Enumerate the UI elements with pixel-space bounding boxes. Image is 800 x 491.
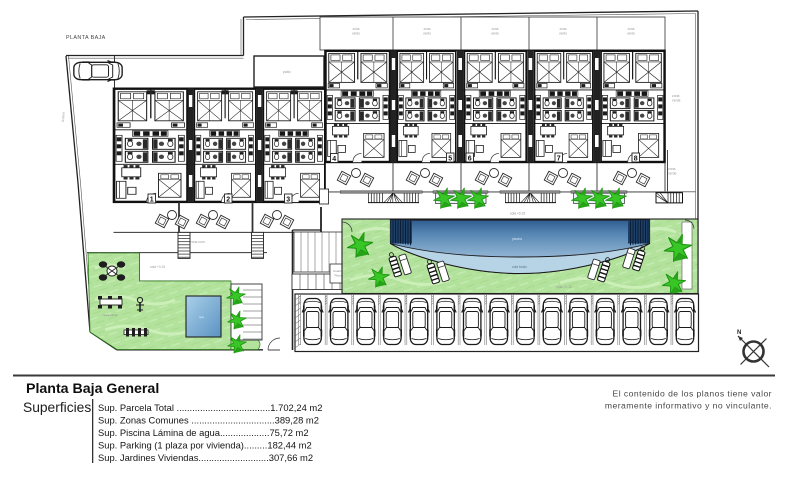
svg-text:meramente informativo y no vin: meramente informativo y no vinculante. [605, 401, 772, 411]
svg-text:3: 3 [286, 196, 290, 203]
svg-text:Sup. Zonas Comunes ...........: Sup. Zonas Comunes .....................… [98, 414, 319, 425]
svg-text:7: 7 [557, 155, 561, 162]
svg-text:piscina: piscina [512, 237, 522, 241]
svg-text:cota +0.15: cota +0.15 [510, 212, 525, 216]
svg-text:zona: zona [492, 27, 499, 31]
svg-text:spa: spa [199, 315, 204, 319]
svg-text:verde: verde [672, 99, 681, 103]
svg-text:verde: verde [352, 32, 360, 36]
svg-text:5: 5 [448, 155, 452, 162]
svg-text:patio: patio [283, 70, 291, 74]
svg-text:verde: verde [491, 32, 499, 36]
svg-text:zona: zona [672, 94, 679, 98]
svg-text:cota +0.15: cota +0.15 [150, 265, 165, 269]
svg-text:Planta Baja General: Planta Baja General [26, 381, 159, 397]
svg-text:4: 4 [332, 156, 336, 163]
svg-text:Sup. Parcela Total ...........: Sup. Parcela Total .....................… [98, 402, 322, 413]
svg-text:cota +0.10: cota +0.10 [556, 285, 572, 289]
svg-text:zona: zona [560, 27, 567, 31]
svg-text:verde: verde [559, 32, 567, 36]
svg-text:1: 1 [150, 196, 154, 203]
svg-text:verde: verde [668, 172, 677, 176]
svg-text:mesa picnic: mesa picnic [102, 313, 118, 317]
svg-text:cota fondo: cota fondo [512, 265, 527, 269]
svg-text:zona com.: zona com. [190, 240, 206, 244]
svg-text:Sup. Jardines Viviendas.......: Sup. Jardines Viviendas.................… [98, 452, 313, 463]
svg-text:verde: verde [423, 32, 431, 36]
svg-text:N: N [737, 330, 741, 336]
svg-text:El contenido de los planos tie: El contenido de los planos tiene valor [613, 389, 772, 399]
svg-text:Sup. Parking (1 plaza por vivi: Sup. Parking (1 plaza por vivienda).....… [98, 440, 312, 451]
svg-text:zona: zona [424, 27, 431, 31]
svg-text:verde: verde [627, 32, 635, 36]
svg-text:zona: zona [628, 27, 635, 31]
svg-text:2: 2 [226, 196, 230, 203]
svg-text:Superficies: Superficies [23, 400, 91, 415]
svg-text:zona: zona [353, 27, 360, 31]
svg-text:PLANTA BAJA: PLANTA BAJA [66, 35, 106, 41]
svg-text:Sup. Piscina Lámina de agua...: Sup. Piscina Lámina de agua.............… [98, 427, 309, 438]
svg-text:zona: zona [668, 167, 675, 171]
svg-text:8: 8 [634, 155, 638, 162]
svg-text:6: 6 [468, 155, 472, 162]
